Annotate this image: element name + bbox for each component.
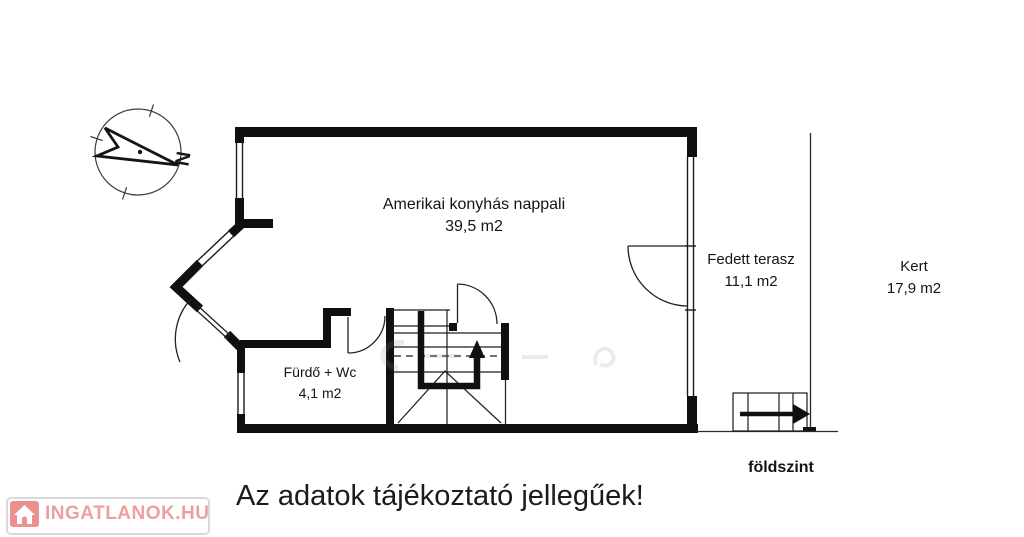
room-area: 4,1 m2 — [255, 383, 385, 404]
entrance-steps-icon — [733, 393, 810, 431]
floorplan-page: Amerikai konyhás nappali 39,5 m2 Fürdő +… — [0, 0, 1024, 537]
walls-diagonal — [176, 221, 245, 349]
disclaimer-text: Az adatok tájékoztató jellegűek! — [236, 480, 644, 513]
stair-door-icon — [458, 284, 498, 324]
room-label-living: Amerikai konyhás nappali 39,5 m2 — [344, 194, 604, 238]
room-label-terrace: Fedett terasz 11,1 m2 — [691, 249, 811, 293]
site-logo-text: INGATLANOK.HU — [45, 503, 209, 525]
room-name: Fedett terasz — [691, 249, 811, 271]
room-area: 11,1 m2 — [691, 271, 811, 293]
entry-door-icon — [175, 299, 231, 362]
room-area: 17,9 m2 — [854, 278, 974, 300]
room-area: 39,5 m2 — [344, 216, 604, 238]
stairs-up-arrow-icon — [469, 340, 485, 358]
north-needle-icon — [97, 128, 178, 165]
floor-level-label: földszint — [721, 459, 841, 477]
room-name: Kert — [854, 256, 974, 278]
room-name: Fürdő + Wc — [255, 362, 385, 383]
terrace-door-icon — [628, 246, 687, 306]
site-logo: INGATLANOK.HU — [6, 497, 210, 535]
room-name: Amerikai konyhás nappali — [344, 194, 604, 216]
house-icon — [10, 501, 39, 527]
compass-icon — [90, 104, 181, 199]
room-label-bathroom: Fürdő + Wc 4,1 m2 — [255, 362, 385, 404]
room-label-garden: Kert 17,9 m2 — [854, 256, 974, 300]
bathroom-door-icon — [348, 316, 385, 353]
